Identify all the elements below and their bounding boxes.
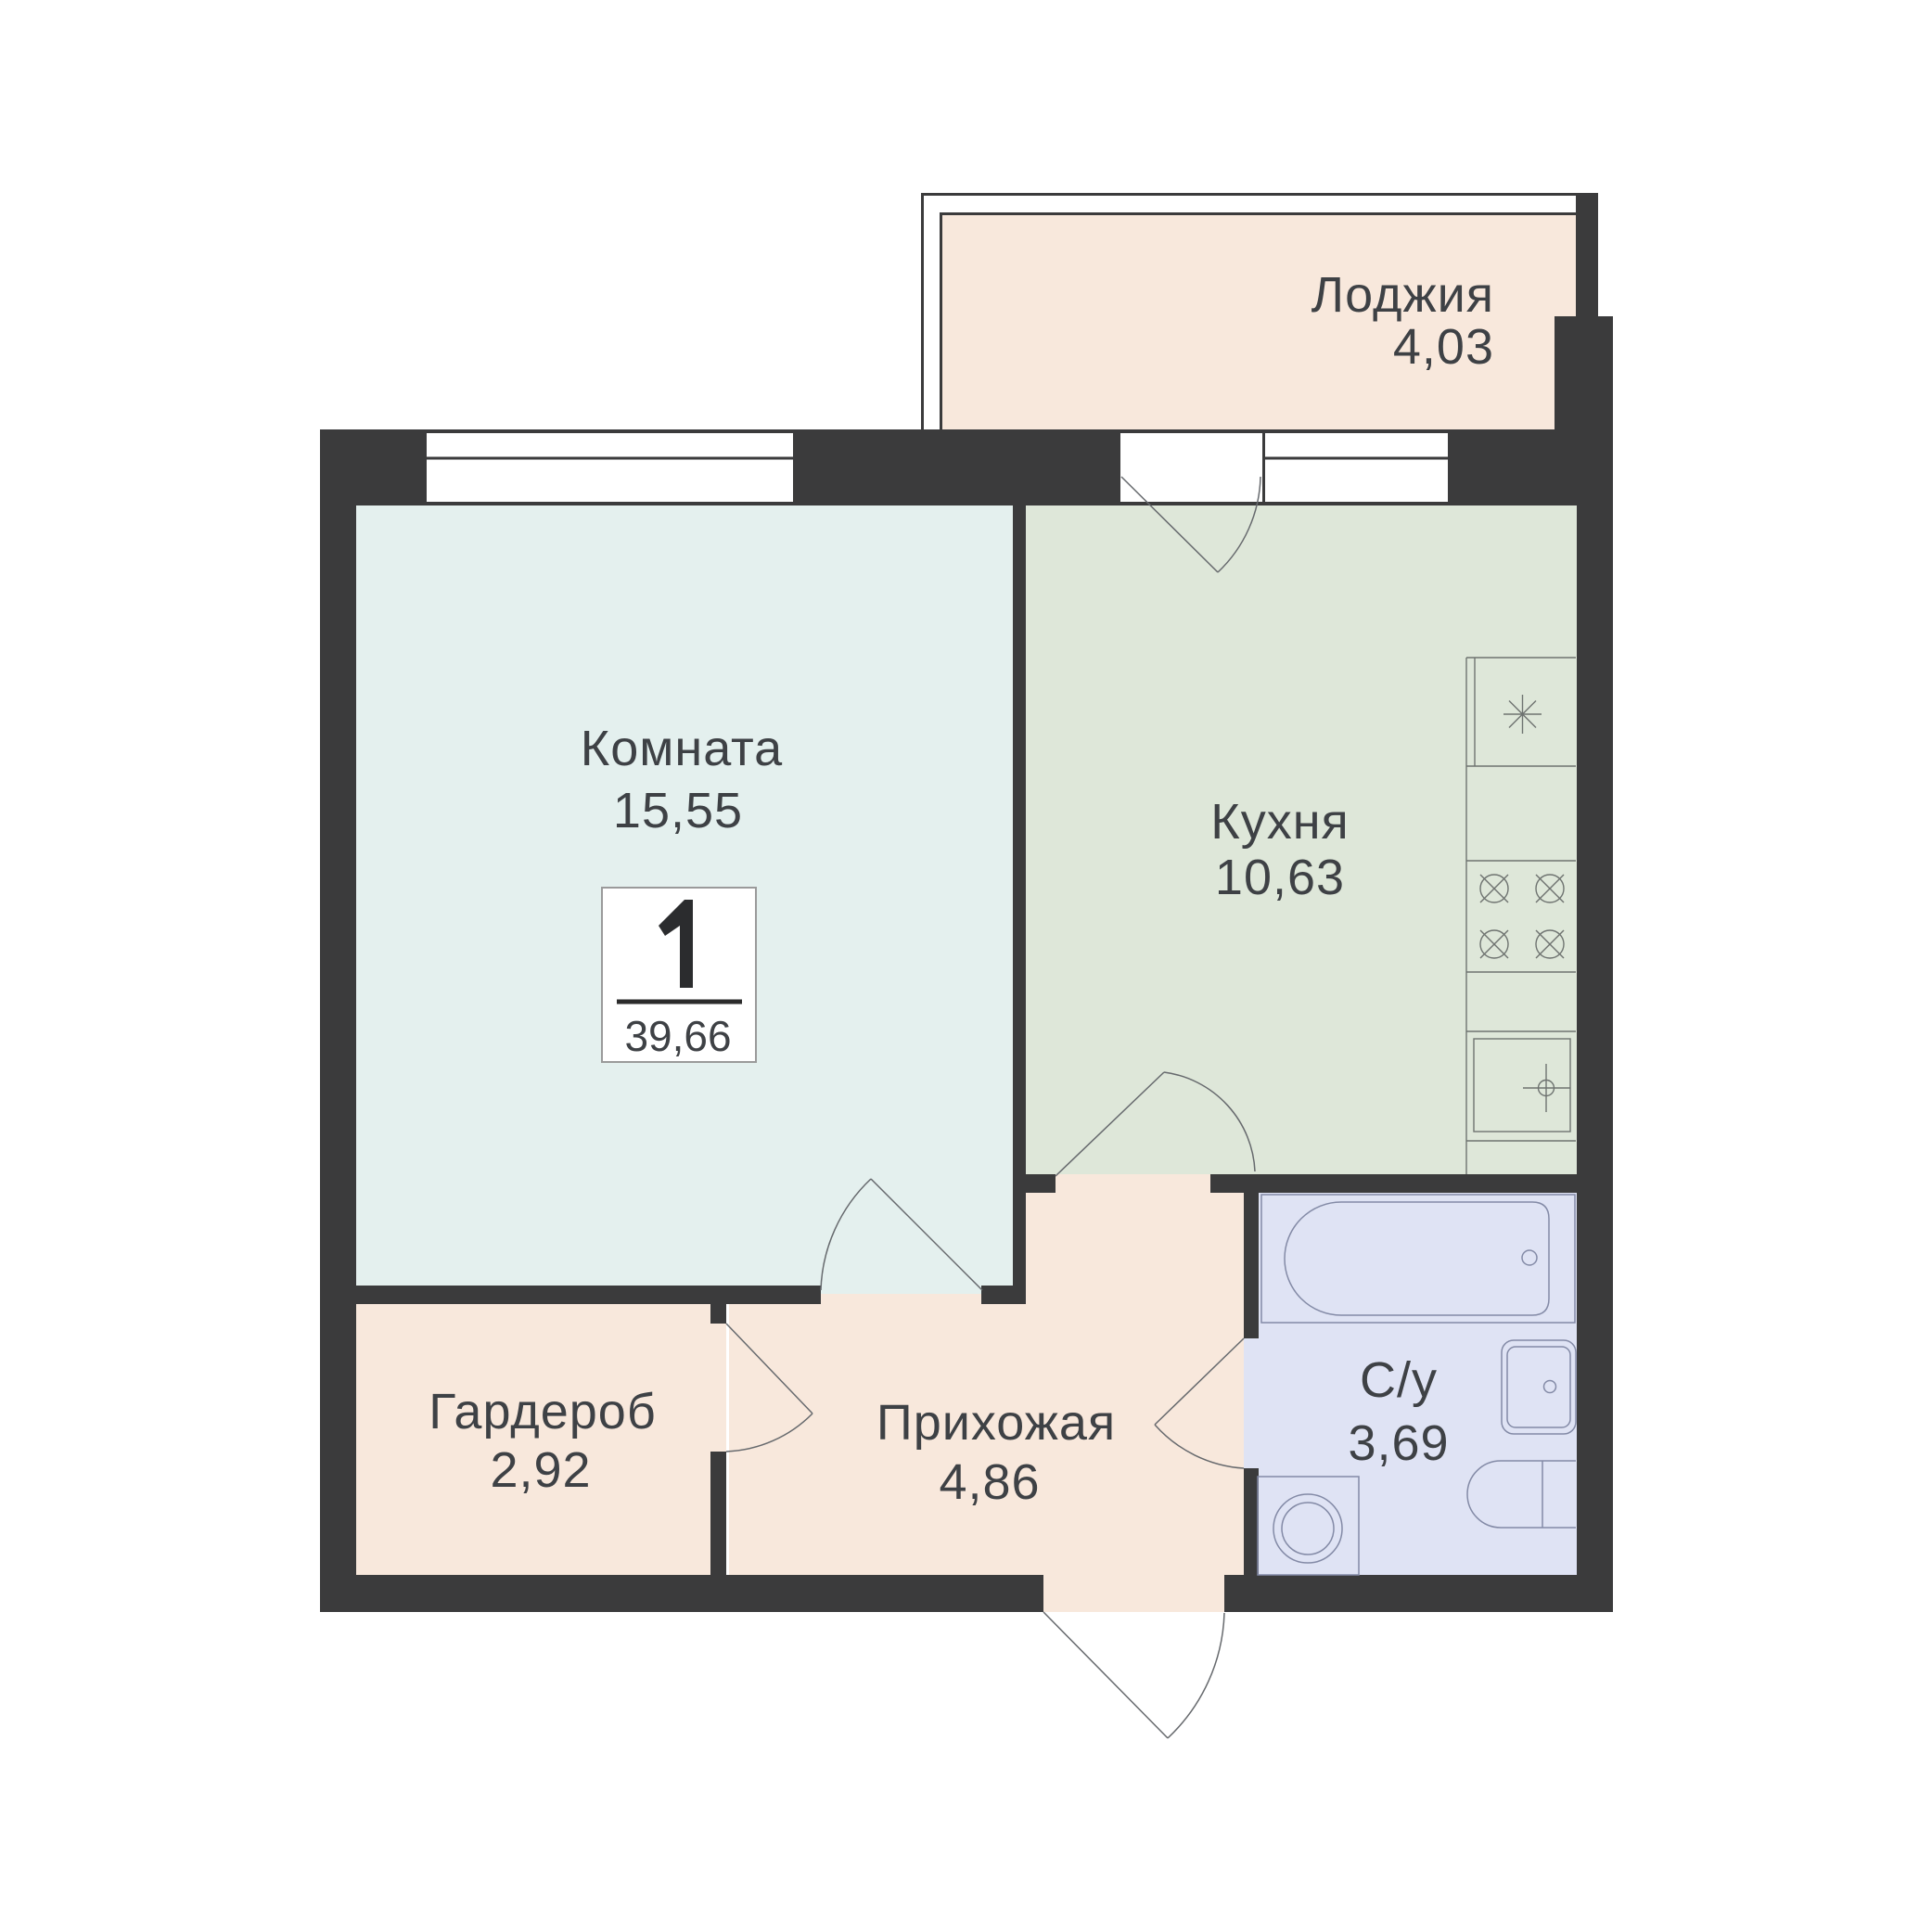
svg-text:2,92: 2,92 bbox=[490, 1442, 591, 1498]
svg-text:4,03: 4,03 bbox=[1393, 319, 1494, 375]
svg-text:15,55: 15,55 bbox=[613, 783, 743, 838]
svg-text:Лоджия: Лоджия bbox=[1311, 267, 1494, 323]
svg-text:10,63: 10,63 bbox=[1215, 850, 1345, 905]
svg-text:4,86: 4,86 bbox=[939, 1454, 1040, 1510]
svg-text:3,69: 3,69 bbox=[1348, 1415, 1449, 1471]
svg-text:Прихожая: Прихожая bbox=[876, 1395, 1116, 1451]
svg-text:39,66: 39,66 bbox=[624, 1012, 731, 1060]
svg-text:С/у: С/у bbox=[1360, 1352, 1438, 1408]
svg-text:Гардероб: Гардероб bbox=[429, 1384, 657, 1439]
svg-text:Кухня: Кухня bbox=[1210, 794, 1350, 850]
svg-text:Комната: Комната bbox=[581, 721, 783, 776]
